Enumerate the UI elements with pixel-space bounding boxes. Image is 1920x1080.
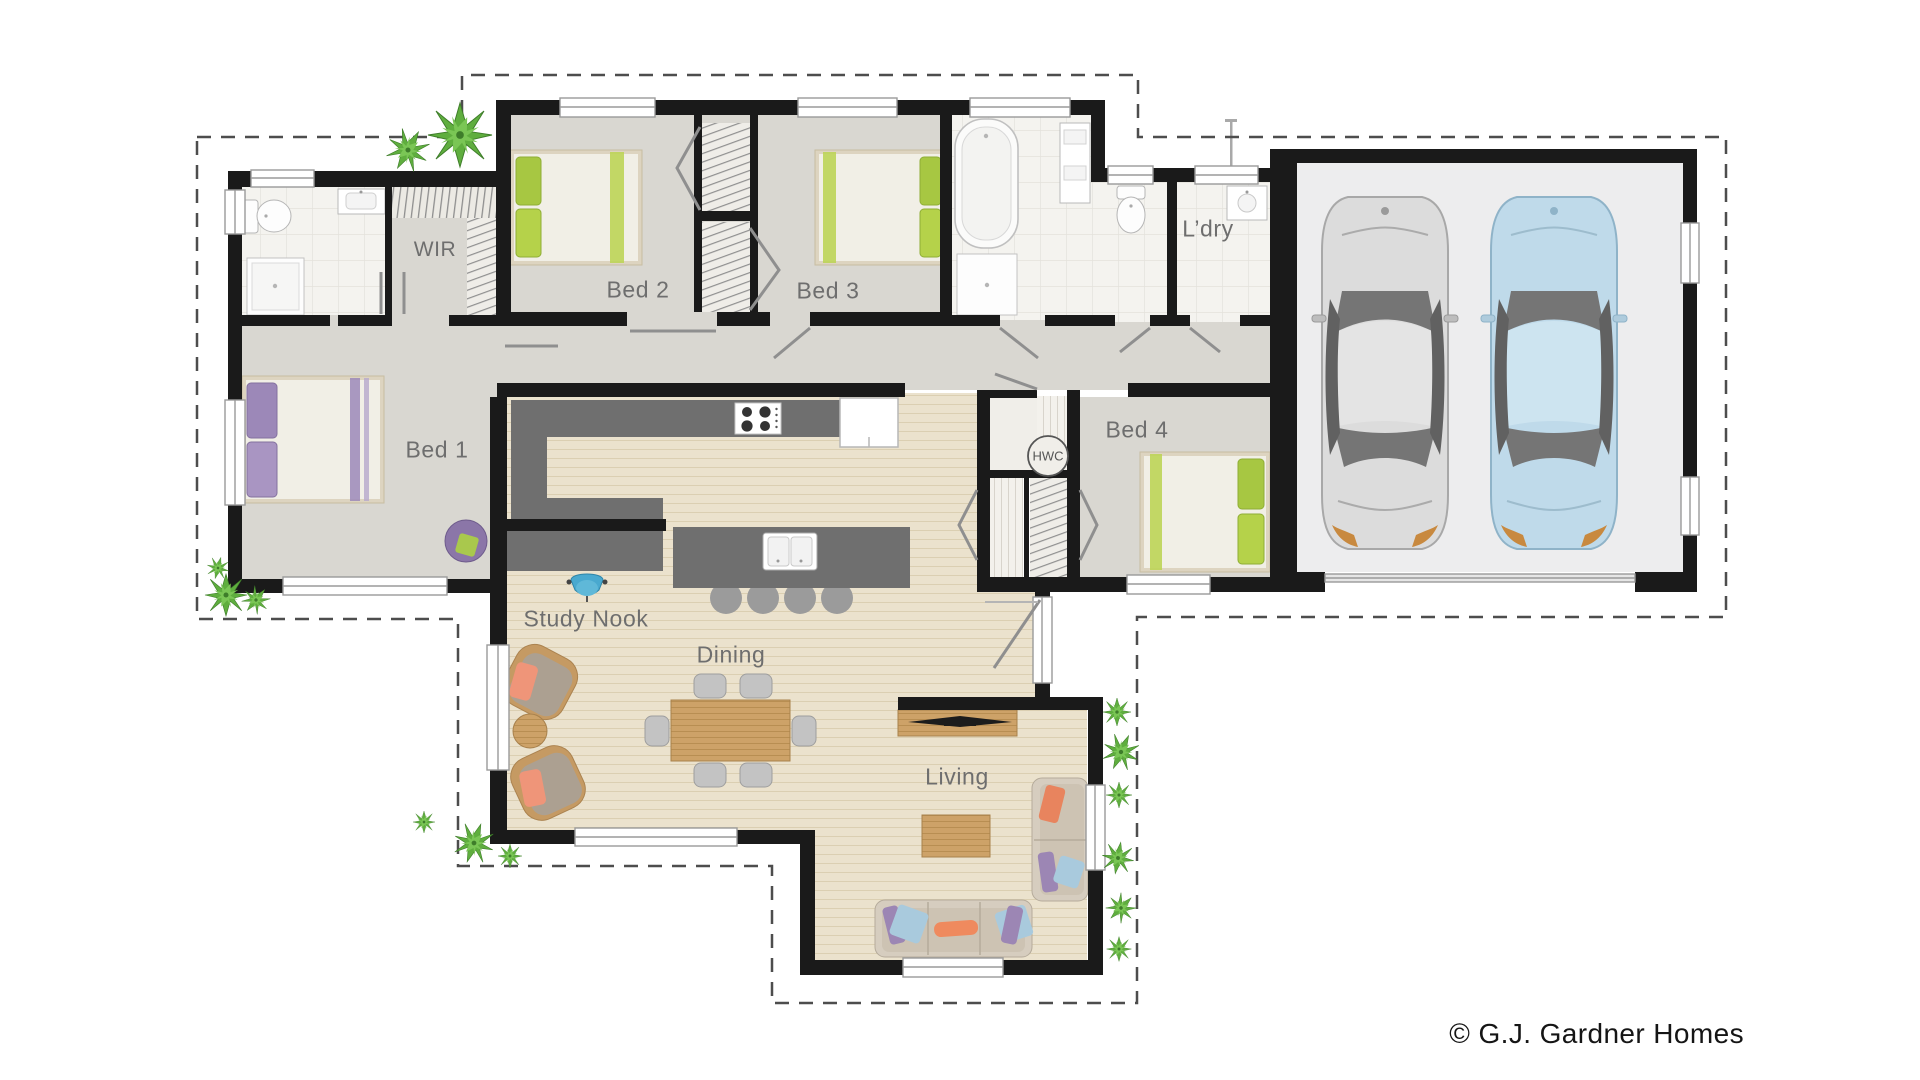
plant-icon	[379, 121, 436, 178]
window-icon	[560, 98, 655, 117]
room-label-bed1: Bed 1	[405, 437, 468, 464]
bed3-icon	[815, 150, 947, 265]
bathtub-icon	[955, 119, 1018, 248]
shower-icon	[957, 254, 1017, 315]
bed2-wardrobe-icon	[702, 123, 750, 211]
room-label-bed4: Bed 4	[1105, 417, 1168, 444]
hwc-label: HWC	[1032, 449, 1063, 464]
door-window-icon	[1033, 597, 1052, 683]
side-table-icon	[513, 714, 547, 748]
plant-icon	[498, 844, 522, 868]
window-icon	[1681, 223, 1699, 283]
floor-plan-canvas: WIR Bed 2 Bed 3 L’dry Bed 1 Bed 4 Study …	[0, 0, 1920, 1080]
vanity-icon	[338, 189, 385, 214]
room-label-bed3: Bed 3	[796, 278, 859, 305]
floor-plan-drawing	[0, 0, 1920, 1080]
plant-icon	[413, 811, 435, 833]
window-icon	[251, 170, 314, 187]
window-icon	[1108, 166, 1153, 184]
cooktop-icon	[735, 403, 781, 434]
room-label-bed2: Bed 2	[606, 277, 669, 304]
wir-wardrobe-icon	[392, 187, 499, 218]
linen-closet	[990, 478, 1023, 577]
window-icon	[1681, 477, 1699, 535]
window-icon	[225, 400, 245, 505]
downpipe-line	[1230, 120, 1233, 167]
plant-icon	[428, 103, 492, 167]
window-icon	[1127, 575, 1210, 594]
car-blue-icon	[1481, 197, 1627, 549]
plant-icon	[1101, 888, 1142, 929]
bed4-icon	[1140, 452, 1270, 572]
tv-cabinet-icon	[898, 710, 1017, 736]
vanity-icon	[1060, 123, 1090, 203]
sofa-icon	[875, 900, 1034, 957]
plant-icon	[205, 555, 232, 582]
toilet-icon	[1117, 186, 1145, 233]
toilet-icon	[243, 200, 291, 233]
window-icon	[283, 577, 447, 595]
room-label-dining: Dining	[697, 642, 766, 669]
plant-icon	[1106, 782, 1132, 808]
garage-door-icon	[1325, 574, 1635, 582]
window-icon	[903, 958, 1003, 977]
window-icon	[798, 98, 897, 117]
room-label-ldry: L’dry	[1182, 216, 1234, 243]
plant-icon	[1107, 937, 1132, 962]
coffee-table-icon	[922, 815, 990, 857]
room-label-living: Living	[925, 764, 989, 791]
plant-icon	[1103, 698, 1131, 726]
window-icon	[1195, 166, 1258, 184]
window-icon	[575, 828, 737, 846]
window-icon	[1086, 785, 1105, 870]
round-chair-icon	[445, 520, 487, 562]
room-label-study: Study Nook	[524, 606, 649, 633]
bed1-icon	[242, 376, 384, 503]
window-icon	[970, 98, 1070, 117]
watermark: © G.J. Gardner Homes	[1449, 1018, 1744, 1050]
study-desk	[506, 531, 663, 571]
bed2-icon	[510, 150, 642, 265]
bed3-wardrobe-icon	[702, 222, 750, 312]
window-icon	[487, 645, 509, 770]
shower-icon	[247, 258, 304, 315]
sofa-icon	[1032, 778, 1088, 901]
plant-icon	[205, 574, 247, 616]
room-label-wir: WIR	[414, 238, 457, 262]
car-silver-icon	[1312, 197, 1458, 549]
window-icon	[225, 190, 245, 234]
island-sink-icon	[763, 533, 817, 570]
